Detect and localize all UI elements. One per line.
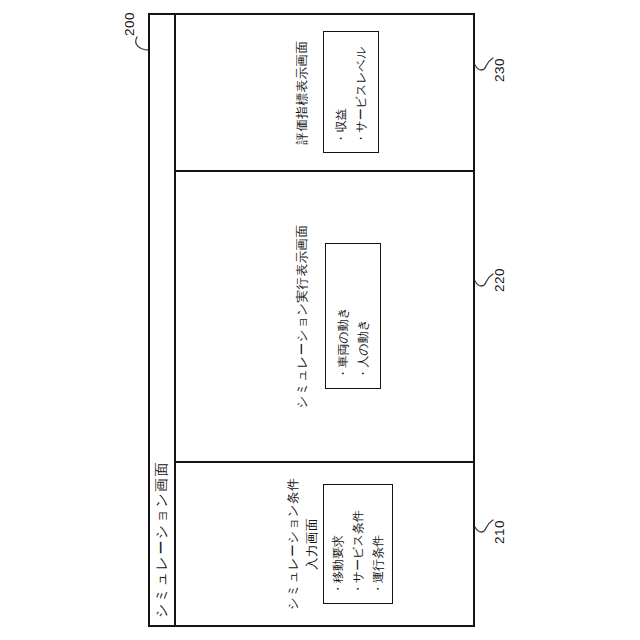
- list-item: ・サービス条件: [348, 493, 368, 595]
- rotated-figure-canvas: 200 シミュレーション画面 シミュレーション条件 入力画面 ・移動要求 ・サー…: [0, 0, 640, 640]
- simulation-screen-title: シミュレーション画面: [153, 461, 171, 618]
- ref-label-220: 220: [492, 260, 507, 300]
- section-heading-line1: シミュレーション条件: [284, 478, 303, 610]
- evaluation-display-items-box: ・収益 ・サービスレベル: [323, 32, 379, 154]
- leader-line-220: [474, 269, 494, 289]
- screen-content-row: シミュレーション条件 入力画面 ・移動要求 ・サービス条件 ・運行条件 シミュレ…: [176, 15, 473, 625]
- section-heading-line2: 入力画面: [303, 478, 322, 610]
- list-item: ・人の動き: [353, 254, 373, 380]
- execution-display-items-box: ・車両の動き ・人の動き: [325, 244, 381, 390]
- section-execution-display-heading: シミュレーション実行表示画面: [293, 224, 312, 408]
- ref-label-210: 210: [492, 512, 507, 552]
- section-heading-line1: 評価指標表示画面: [293, 41, 312, 145]
- title-band: シミュレーション画面: [150, 15, 176, 625]
- list-item: ・移動要求: [328, 493, 348, 595]
- condition-input-items-box: ・移動要求 ・サービス条件 ・運行条件: [323, 484, 393, 604]
- leader-line-230: [474, 53, 494, 73]
- list-item: ・収益: [331, 41, 351, 145]
- section-condition-input-210: シミュレーション条件 入力画面 ・移動要求 ・サービス条件 ・運行条件: [176, 463, 473, 625]
- list-item: ・運行条件: [368, 493, 388, 595]
- list-item: ・サービスレベル: [351, 41, 371, 145]
- section-evaluation-display-heading: 評価指標表示画面: [293, 41, 312, 145]
- patent-figure-page: 200 シミュレーション画面 シミュレーション条件 入力画面 ・移動要求 ・サー…: [0, 0, 640, 640]
- ref-label-230: 230: [492, 50, 507, 90]
- section-evaluation-display-230: 評価指標表示画面 ・収益 ・サービスレベル: [176, 15, 473, 170]
- list-item: ・車両の動き: [333, 254, 353, 380]
- simulation-screen-frame: シミュレーション画面 シミュレーション条件 入力画面 ・移動要求 ・サービス条件…: [148, 13, 475, 627]
- section-heading-line1: シミュレーション実行表示画面: [293, 224, 312, 408]
- section-execution-display-220: シミュレーション実行表示画面 ・車両の動き ・人の動き: [176, 170, 473, 463]
- leader-line-210: [474, 515, 494, 535]
- section-condition-input-heading: シミュレーション条件 入力画面: [284, 478, 322, 610]
